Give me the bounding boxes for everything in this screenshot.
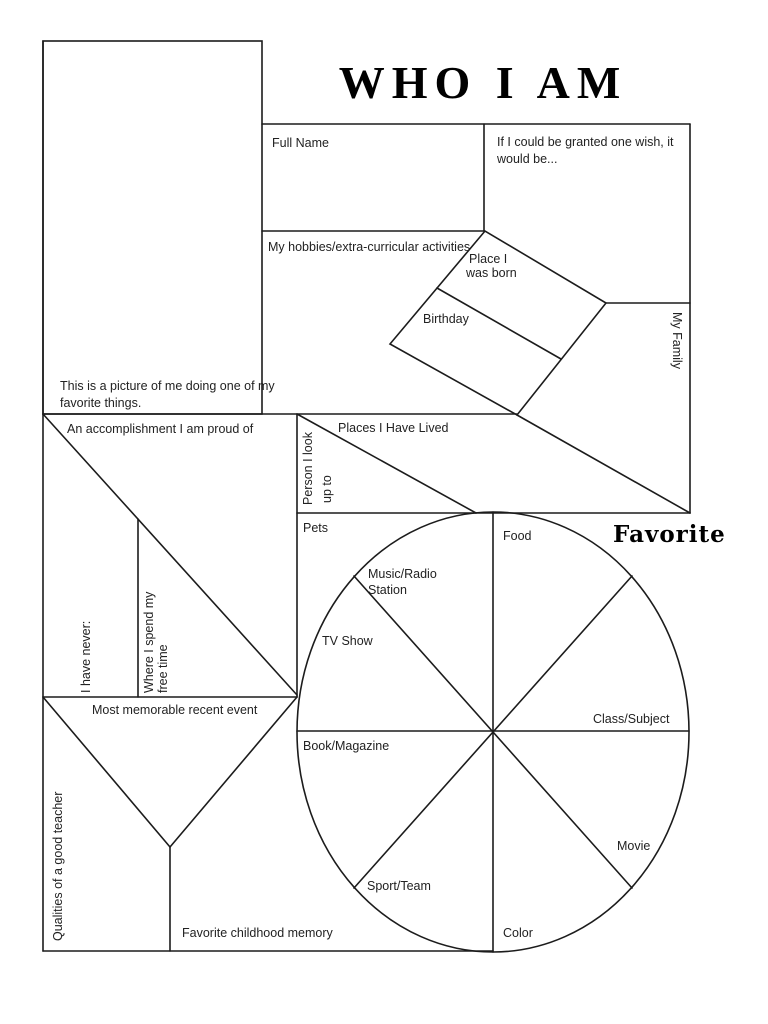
place-born-label-line1: Place I <box>469 252 507 266</box>
wish-label-line1: If I could be granted one wish, it <box>497 135 674 149</box>
picture-box <box>43 41 262 414</box>
hobbies-label: My hobbies/extra-curricular activities <box>268 240 470 254</box>
free-time-label-line2: free time <box>156 644 170 693</box>
person-look-label-line1: Person I look <box>301 431 315 505</box>
person-look-label-line2: up to <box>320 475 334 503</box>
wheel-music-label-line2: Station <box>368 583 407 597</box>
my-family-label: My Family <box>670 312 684 370</box>
wheel-sport-team-label: Sport/Team <box>367 879 431 893</box>
accomplishment-label: An accomplishment I am proud of <box>67 422 254 436</box>
birthday-label: Birthday <box>423 312 470 326</box>
worksheet-page: WHO I AM Full Name If I could be granted… <box>0 0 768 1024</box>
wheel-food-label: Food <box>503 529 532 543</box>
i-have-never-label: I have never: <box>79 621 93 693</box>
full-name-label: Full Name <box>272 136 329 150</box>
wheel-music-label-line1: Music/Radio <box>368 567 437 581</box>
qualities-teacher-label: Qualities of a good teacher <box>51 792 65 941</box>
places-lived-label: Places I Have Lived <box>338 421 449 435</box>
place-born-label-line2: was born <box>465 266 517 280</box>
favorite-heading: Favorite <box>613 521 726 548</box>
picture-caption-line2: favorite things. <box>60 396 141 410</box>
wheel-tv-show-label: TV Show <box>322 634 374 648</box>
wheel-class-subject-label: Class/Subject <box>593 712 670 726</box>
wheel-color-label: Color <box>503 926 533 940</box>
wheel-movie-label: Movie <box>617 839 650 853</box>
page-title: WHO I AM <box>339 57 628 108</box>
free-time-label-line1: Where I spend my <box>142 591 156 693</box>
my-family-diagonal <box>517 415 690 513</box>
wheel-pets-label: Pets <box>303 521 328 535</box>
worksheet-canvas: WHO I AM Full Name If I could be granted… <box>0 0 768 1024</box>
wish-label-line2: would be... <box>496 152 557 166</box>
memorable-event-label: Most memorable recent event <box>92 703 258 717</box>
v-right-diagonal <box>170 697 297 847</box>
childhood-memory-label: Favorite childhood memory <box>182 926 334 940</box>
picture-caption-line1: This is a picture of me doing one of my <box>60 379 275 393</box>
wheel-book-magazine-label: Book/Magazine <box>303 739 389 753</box>
